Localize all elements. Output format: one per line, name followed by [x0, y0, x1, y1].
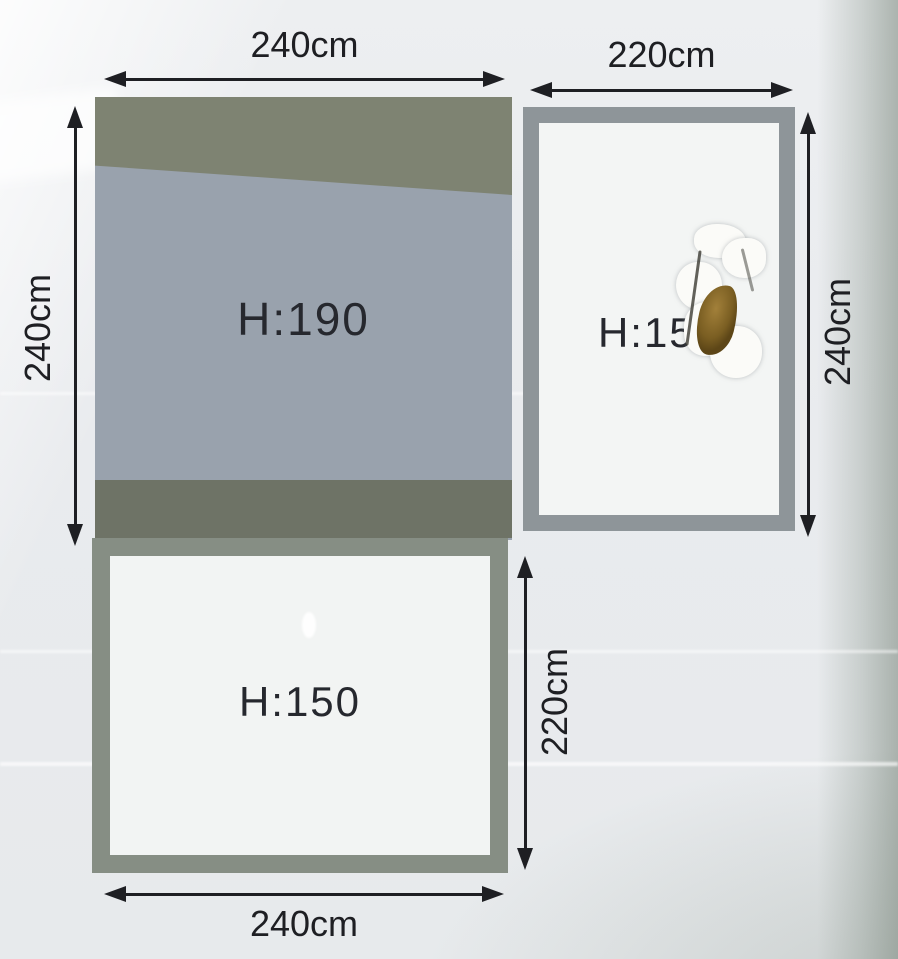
wrap-glint	[302, 612, 316, 638]
dim-label-bottom-width: 240cm	[104, 903, 504, 945]
arrow-line	[118, 893, 490, 896]
panel-bottom-left-height-label: H:150	[110, 552, 490, 851]
arrowhead-down-icon	[800, 515, 816, 537]
dim-label-right-height: 240cm	[818, 262, 858, 402]
dim-arrow-middle-height	[517, 556, 533, 870]
arrow-line	[807, 126, 810, 523]
package-photo: H:190 H:150 H:150 240cm 220cm 240cm	[0, 0, 898, 959]
dim-label-top-right-width: 220cm	[530, 34, 793, 76]
wrap-tear	[664, 222, 768, 384]
arrowhead-right-icon	[483, 71, 505, 87]
dim-arrow-top-left-width	[104, 71, 505, 87]
dim-arrow-top-right-width	[530, 82, 793, 98]
dim-label-top-left-width: 240cm	[104, 24, 505, 66]
arrowhead-down-icon	[517, 848, 533, 870]
arrow-line	[524, 570, 527, 856]
arrowhead-down-icon	[67, 524, 83, 546]
dim-label-middle-height: 220cm	[535, 632, 575, 772]
arrow-line	[118, 78, 491, 81]
dim-label-left-height: 240cm	[18, 258, 58, 398]
dim-arrow-bottom-width	[104, 886, 504, 902]
dim-arrow-left-height	[67, 106, 83, 546]
panel-bottom-left: H:150	[92, 538, 508, 873]
dim-arrow-right-height	[800, 112, 816, 537]
panel-top-left-height-label: H:190	[95, 97, 512, 540]
panel-top-left: H:190	[95, 97, 512, 540]
arrowhead-right-icon	[771, 82, 793, 98]
arrow-line	[544, 89, 779, 92]
arrow-line	[74, 120, 77, 532]
arrowhead-right-icon	[482, 886, 504, 902]
